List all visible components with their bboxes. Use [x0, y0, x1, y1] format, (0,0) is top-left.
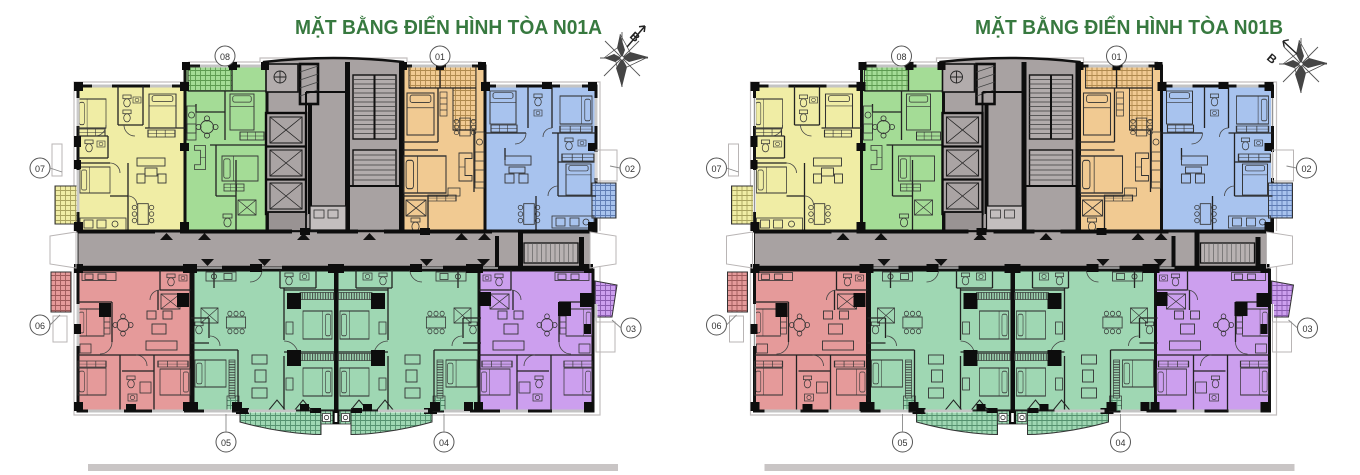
svg-text:05: 05	[221, 438, 231, 448]
svg-text:07: 07	[35, 164, 45, 174]
svg-text:08: 08	[220, 52, 230, 62]
svg-text:MẶT BẰNG ĐIỂN HÌNH TÒA N01A: MẶT BẰNG ĐIỂN HÌNH TÒA N01A	[295, 15, 602, 39]
svg-text:04: 04	[439, 438, 449, 448]
svg-text:MẶT BẰNG ĐIỂN HÌNH TÒA N01B: MẶT BẰNG ĐIỂN HÌNH TÒA N01B	[975, 15, 1283, 39]
svg-text:03: 03	[626, 324, 636, 334]
svg-text:06: 06	[35, 321, 45, 331]
svg-text:01: 01	[435, 52, 445, 62]
svg-text:B: B	[1264, 51, 1280, 68]
svg-text:02: 02	[625, 164, 635, 174]
